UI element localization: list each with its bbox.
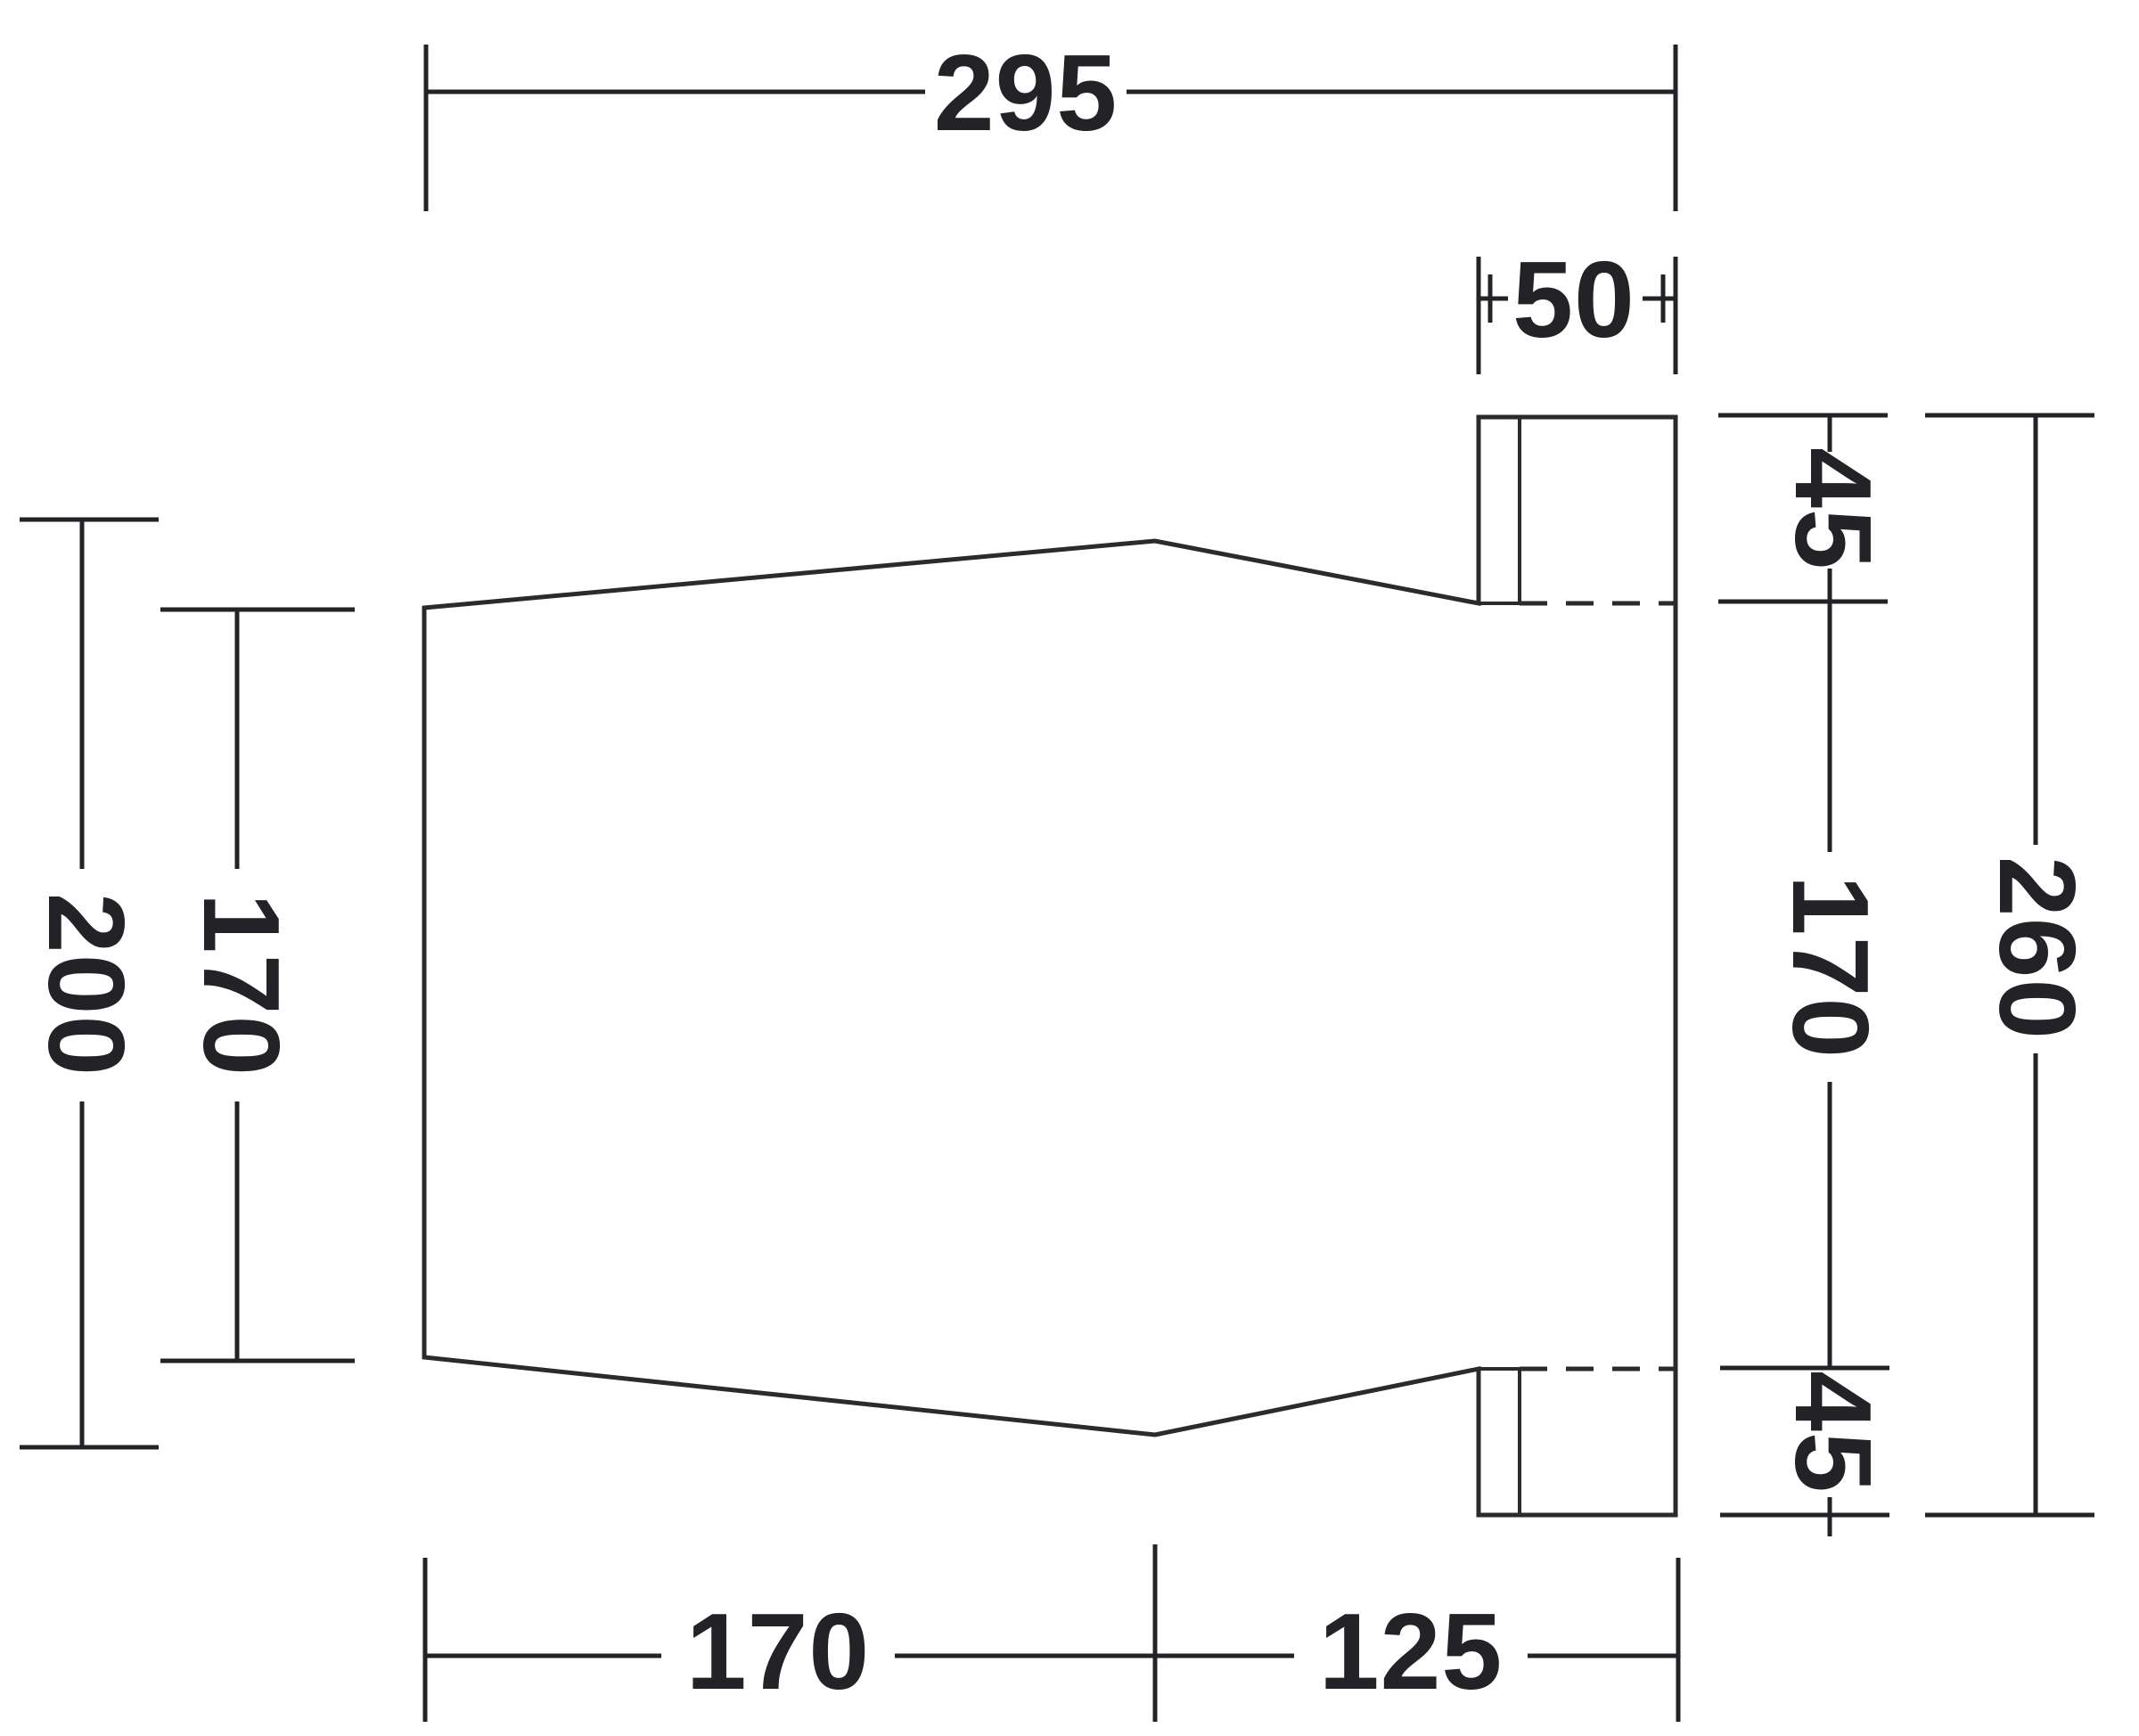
dim-label-right-bottom-flange: 45 xyxy=(1773,1371,1894,1494)
dim-label-left-side: 170 xyxy=(181,893,302,1077)
footprint-silhouette xyxy=(424,417,1676,1515)
dim-bottom-widths: 170 125 xyxy=(425,1544,1678,1722)
dim-right-inner-chain: 45 170 45 xyxy=(1718,415,1894,1536)
dim-label-right-total: 260 xyxy=(1977,856,2098,1041)
dim-right-total: 260 xyxy=(1925,415,2098,1515)
dim-sleeve-width: 50 xyxy=(1479,239,1676,374)
dim-label-bottom-right: 125 xyxy=(1319,1591,1504,1712)
dimension-diagram: 295 50 45 170 45 xyxy=(0,0,2139,1736)
dim-label-right-top-flange: 45 xyxy=(1773,447,1894,570)
dim-top-width: 295 xyxy=(426,32,1676,211)
dim-label-top-width: 295 xyxy=(934,32,1119,153)
dim-label-sleeve-width: 50 xyxy=(1512,239,1635,360)
shape xyxy=(424,417,1676,1515)
dim-label-right-side: 170 xyxy=(1770,875,1891,1060)
dim-label-left-total: 200 xyxy=(26,893,147,1077)
dim-left-side: 170 xyxy=(160,610,355,1361)
dim-left-total: 200 xyxy=(20,520,159,1447)
dim-label-bottom-left: 170 xyxy=(686,1591,871,1712)
